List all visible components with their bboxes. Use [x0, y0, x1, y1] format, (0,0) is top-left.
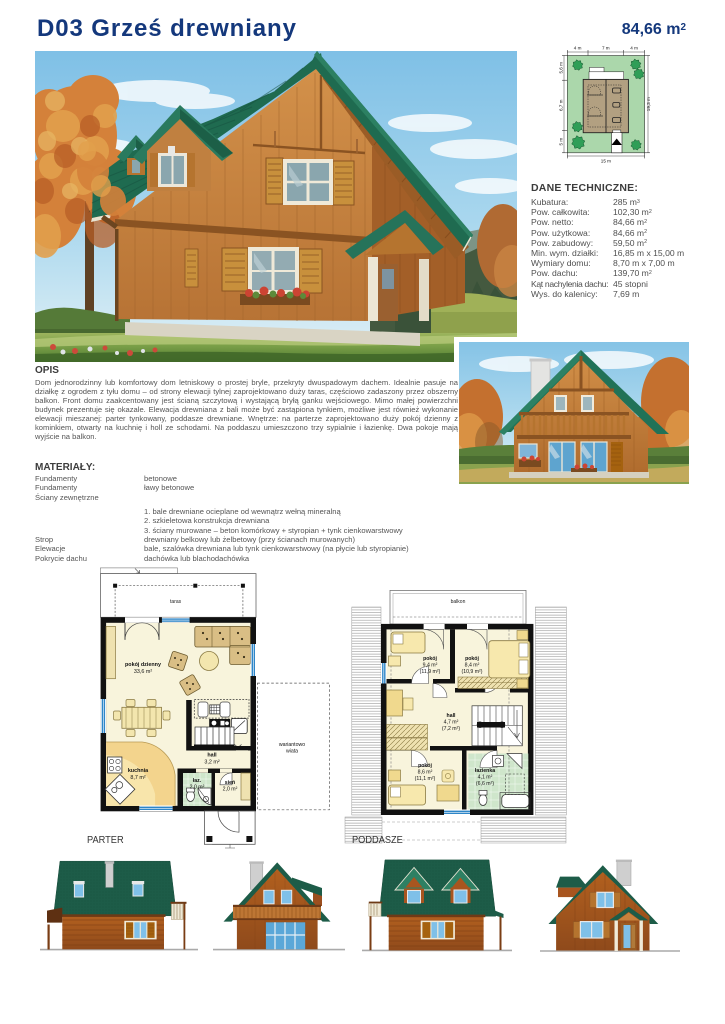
svg-text:19,3 m: 19,3 m [646, 97, 651, 111]
svg-text:łazienka: łazienka [475, 768, 495, 774]
svg-text:4 m: 4 m [630, 45, 638, 50]
svg-text:taras: taras [170, 599, 182, 605]
svg-text:pokój: pokój [423, 656, 437, 662]
svg-text:4 m: 4 m [574, 45, 582, 50]
svg-text:pokój: pokój [465, 656, 479, 662]
svg-text:(11,1 m²): (11,1 m²) [415, 776, 436, 782]
svg-text:8,4 m²: 8,4 m² [465, 663, 480, 669]
svg-text:3,2 m²: 3,2 m² [204, 760, 219, 766]
svg-text:2,0 m²: 2,0 m² [190, 785, 205, 791]
svg-text:(6,6 m²): (6,6 m²) [476, 781, 494, 787]
svg-text:33,6 m²: 33,6 m² [134, 669, 152, 675]
svg-text:9,4 m²: 9,4 m² [423, 663, 438, 669]
svg-text:hall: hall [207, 753, 217, 759]
svg-text:8,7 m²: 8,7 m² [130, 775, 145, 781]
svg-text:pokój dzienny: pokój dzienny [125, 662, 161, 668]
svg-text:wariantowo: wariantowo [279, 742, 305, 748]
svg-text:(11,9 m²): (11,9 m²) [420, 669, 441, 675]
svg-text:kuchnia: kuchnia [128, 768, 149, 774]
svg-text:łaz.: łaz. [193, 778, 202, 784]
svg-text:15 m: 15 m [601, 159, 611, 164]
svg-text:sień: sień [225, 780, 235, 786]
svg-text:(7,2 m²): (7,2 m²) [442, 726, 460, 732]
svg-text:7 m: 7 m [602, 45, 610, 50]
svg-text:pokój: pokój [418, 763, 432, 769]
svg-text:hall: hall [447, 713, 456, 719]
svg-text:2,0 m²: 2,0 m² [223, 787, 238, 793]
svg-text:(10,9 m²): (10,9 m²) [461, 669, 482, 675]
svg-text:4,7 m²: 4,7 m² [444, 720, 459, 726]
svg-text:5 m: 5 m [558, 138, 563, 146]
svg-text:8,6 m²: 8,6 m² [418, 770, 433, 776]
svg-text:balkon: balkon [451, 599, 466, 605]
svg-text:5,6 m: 5,6 m [558, 62, 563, 74]
svg-text:6,7 m: 6,7 m [558, 99, 563, 111]
svg-text:4,1 m²: 4,1 m² [478, 775, 493, 781]
svg-text:wiata: wiata [286, 749, 298, 755]
